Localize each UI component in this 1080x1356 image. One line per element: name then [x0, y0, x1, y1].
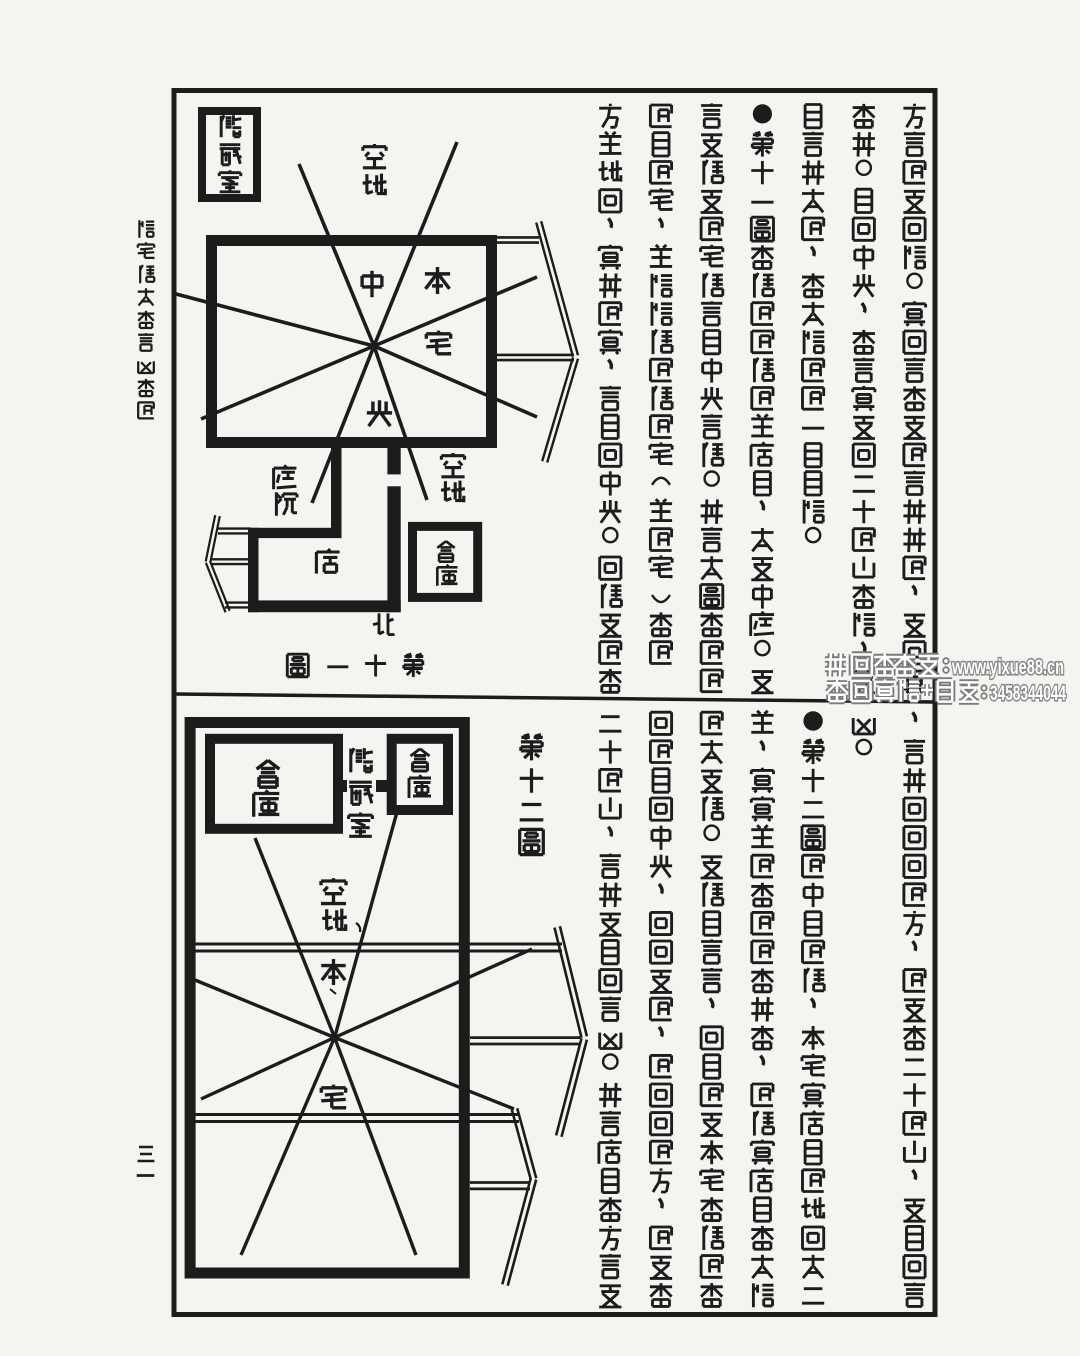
svg-text:www.yixue88.cn: www.yixue88.cn: [951, 656, 1064, 679]
svg-text:3458344044: 3458344044: [990, 682, 1066, 705]
